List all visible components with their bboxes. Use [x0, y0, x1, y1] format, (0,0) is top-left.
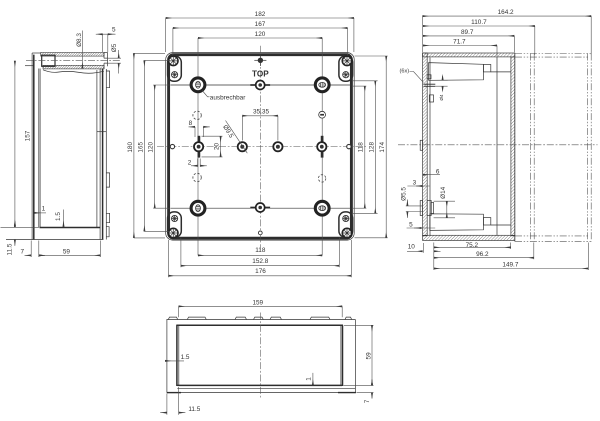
svg-text:7: 7: [364, 399, 371, 403]
svg-text:149.7: 149.7: [502, 262, 518, 269]
svg-text:Ø14: Ø14: [440, 186, 447, 199]
svg-text:1.5: 1.5: [55, 212, 62, 221]
svg-text:159: 159: [252, 299, 263, 306]
svg-text:165: 165: [137, 142, 144, 153]
svg-text:96.2: 96.2: [476, 251, 489, 258]
svg-text:120: 120: [255, 31, 266, 38]
svg-text:75.2: 75.2: [466, 242, 479, 249]
svg-text:1.5: 1.5: [181, 354, 190, 361]
svg-text:6: 6: [436, 168, 440, 175]
svg-text:120: 120: [147, 142, 154, 153]
svg-text:118: 118: [358, 142, 365, 153]
svg-text:TOP: TOP: [252, 69, 269, 78]
svg-text:110.7: 110.7: [471, 19, 487, 26]
svg-text:8: 8: [189, 120, 193, 127]
svg-text:180: 180: [127, 142, 134, 153]
svg-text:167: 167: [255, 21, 266, 28]
svg-text:ausbrechbar: ausbrechbar: [210, 94, 246, 101]
svg-text:2: 2: [188, 160, 192, 167]
svg-text:Ø8.3: Ø8.3: [76, 33, 83, 47]
svg-text:Ø5: Ø5: [111, 43, 118, 52]
svg-text:Ø5.5: Ø5.5: [400, 187, 407, 201]
svg-text:11.5: 11.5: [7, 243, 14, 255]
svg-text:1: 1: [305, 377, 312, 381]
svg-text:176: 176: [255, 268, 266, 275]
svg-text:174: 174: [379, 142, 386, 153]
svg-text:(6x): (6x): [400, 69, 410, 75]
svg-text:35.35: 35.35: [253, 109, 269, 116]
svg-text:Ø4: Ø4: [439, 94, 444, 101]
svg-text:5: 5: [409, 221, 413, 228]
svg-text:152.8: 152.8: [252, 258, 268, 265]
svg-text:157: 157: [24, 130, 31, 141]
svg-text:182: 182: [255, 11, 266, 18]
svg-text:7: 7: [21, 248, 25, 255]
svg-text:71.7: 71.7: [453, 39, 466, 46]
svg-text:1: 1: [42, 205, 46, 212]
svg-text:5: 5: [112, 26, 116, 33]
svg-text:3: 3: [413, 179, 417, 186]
svg-text:118: 118: [255, 247, 266, 254]
svg-text:128: 128: [368, 142, 375, 153]
svg-text:20: 20: [213, 143, 220, 151]
svg-text:11.5: 11.5: [188, 406, 200, 413]
svg-text:59: 59: [63, 248, 71, 255]
svg-text:59: 59: [366, 352, 373, 360]
svg-text:10: 10: [408, 244, 416, 251]
svg-text:89.7: 89.7: [461, 29, 474, 36]
svg-text:164.2: 164.2: [498, 9, 514, 16]
